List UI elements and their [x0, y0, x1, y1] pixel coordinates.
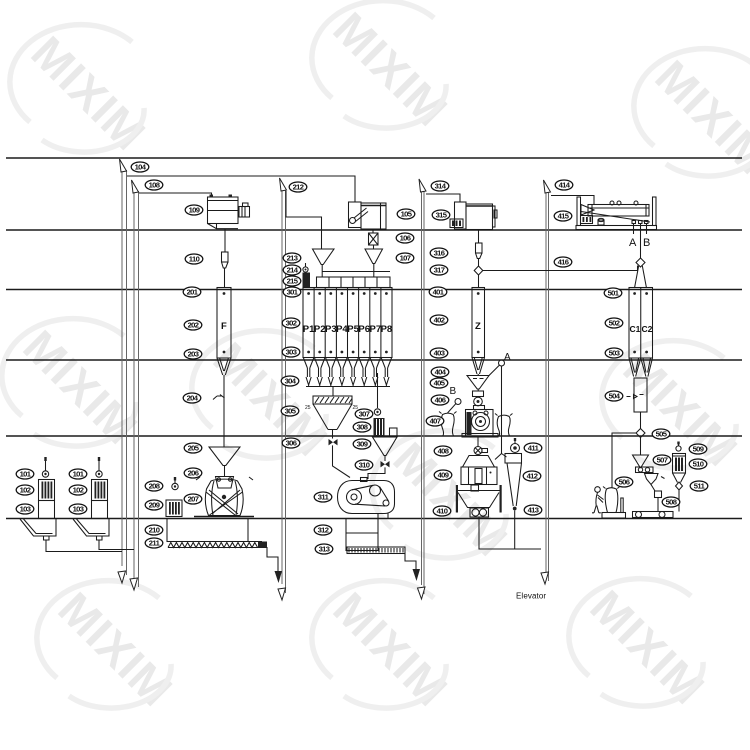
svg-text:107: 107 [400, 254, 411, 263]
svg-text:Elevator: Elevator [516, 592, 546, 601]
svg-text:204: 204 [187, 394, 199, 403]
svg-text:103: 103 [73, 505, 84, 514]
svg-text:101: 101 [73, 470, 85, 479]
svg-text:A: A [504, 352, 511, 363]
svg-text:110: 110 [189, 255, 200, 264]
svg-text:404: 404 [435, 368, 447, 377]
svg-text:301: 301 [287, 288, 299, 297]
svg-text:403: 403 [434, 349, 445, 358]
svg-text:405: 405 [434, 379, 446, 388]
svg-text:309: 309 [357, 440, 368, 449]
svg-text:304: 304 [285, 377, 297, 386]
svg-text:106: 106 [400, 234, 411, 243]
svg-text:C2: C2 [642, 324, 653, 334]
svg-text:P2: P2 [314, 324, 326, 335]
svg-text:413: 413 [528, 506, 539, 515]
svg-text:412: 412 [527, 472, 538, 481]
svg-text:101: 101 [20, 470, 32, 479]
svg-text:205: 205 [188, 444, 200, 453]
svg-text:505: 505 [656, 430, 668, 439]
svg-text:408: 408 [438, 447, 449, 456]
svg-text:409: 409 [438, 471, 449, 480]
svg-text:312: 312 [318, 526, 329, 535]
svg-text:507: 507 [657, 456, 668, 465]
svg-text:401: 401 [433, 288, 445, 297]
svg-text:212: 212 [293, 183, 304, 192]
svg-text:213: 213 [287, 254, 298, 263]
svg-text:B: B [450, 386, 457, 397]
svg-text:207: 207 [188, 495, 199, 504]
svg-text:102: 102 [20, 486, 31, 495]
svg-text:317: 317 [434, 266, 445, 275]
svg-text:P3: P3 [325, 324, 337, 335]
svg-text:102: 102 [73, 486, 84, 495]
svg-text:407: 407 [430, 417, 441, 426]
svg-text:506: 506 [619, 478, 630, 487]
svg-text:510: 510 [693, 460, 704, 469]
svg-text:214: 214 [287, 266, 299, 275]
svg-text:P6: P6 [358, 324, 370, 335]
svg-text:509: 509 [693, 445, 704, 454]
svg-text:210: 210 [149, 526, 160, 535]
svg-text:416: 416 [558, 258, 569, 267]
svg-text:313: 313 [319, 545, 330, 554]
svg-text:202: 202 [188, 321, 199, 330]
svg-text:P8: P8 [381, 324, 393, 335]
svg-text:104: 104 [135, 163, 147, 172]
svg-text:303: 303 [286, 348, 297, 357]
svg-text:108: 108 [149, 181, 160, 190]
svg-text:203: 203 [188, 350, 199, 359]
svg-text:308: 308 [357, 423, 368, 432]
svg-text:502: 502 [609, 319, 620, 328]
svg-text:504: 504 [609, 392, 621, 401]
svg-text:501: 501 [608, 289, 620, 298]
svg-text:307: 307 [359, 410, 370, 419]
svg-text:316: 316 [434, 249, 445, 258]
svg-text:25: 25 [305, 405, 311, 411]
svg-text:411: 411 [528, 444, 540, 453]
svg-text:C1: C1 [630, 324, 641, 334]
svg-text:211: 211 [149, 539, 161, 548]
svg-text:P7: P7 [369, 324, 381, 335]
svg-text:B: B [643, 237, 650, 249]
svg-text:305: 305 [285, 407, 297, 416]
svg-text:201: 201 [187, 288, 199, 297]
svg-text:302: 302 [286, 319, 297, 328]
svg-text:503: 503 [609, 349, 620, 358]
svg-text:406: 406 [435, 396, 446, 405]
svg-text:Z: Z [475, 321, 481, 332]
svg-text:315: 315 [436, 211, 448, 220]
svg-text:414: 414 [559, 181, 571, 190]
svg-text:F: F [221, 321, 227, 332]
svg-text:215: 215 [287, 277, 299, 286]
svg-text:311: 311 [318, 493, 330, 502]
svg-text:415: 415 [558, 212, 570, 221]
svg-text:A: A [629, 237, 637, 249]
svg-text:410: 410 [437, 507, 448, 516]
svg-text:206: 206 [188, 469, 199, 478]
svg-text:511: 511 [694, 482, 706, 491]
svg-text:314: 314 [435, 182, 447, 191]
svg-text:109: 109 [189, 206, 200, 215]
svg-text:103: 103 [20, 505, 31, 514]
svg-text:105: 105 [401, 210, 413, 219]
svg-text:508: 508 [666, 498, 677, 507]
svg-text:209: 209 [149, 501, 160, 510]
svg-text:402: 402 [434, 316, 445, 325]
svg-text:306: 306 [286, 439, 297, 448]
svg-text:208: 208 [149, 482, 160, 491]
svg-text:310: 310 [359, 461, 370, 470]
